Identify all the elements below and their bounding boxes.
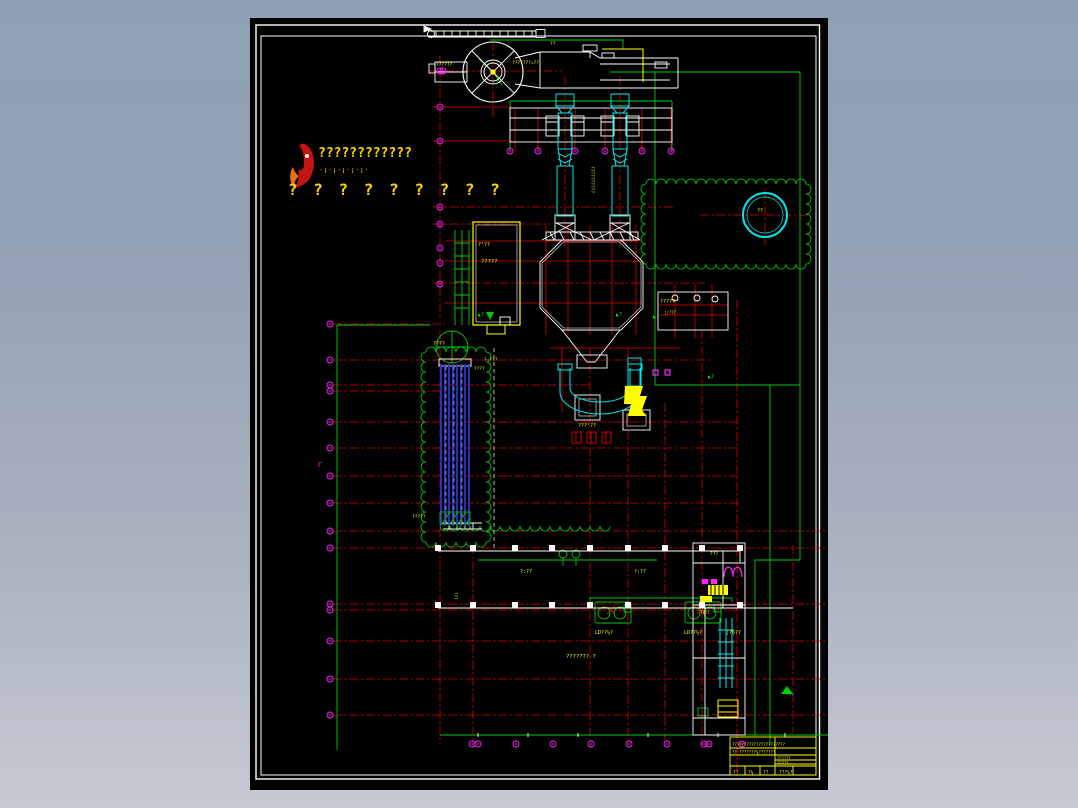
cad-canvas: ?????????????????????? ??·???????¼??????… — [250, 18, 828, 790]
drawing-label: ?????????? — [589, 166, 595, 193]
drawing-label: ·?? — [786, 692, 794, 698]
yellow-fills — [491, 70, 729, 603]
title-cell-2: ?¼ — [748, 770, 754, 776]
drawing-label: ??? — [453, 592, 458, 600]
drawing-label: ¦?§?? — [726, 630, 741, 636]
stack-revision-cloud — [421, 347, 491, 547]
column-square — [549, 602, 555, 608]
drawing-label: ??? — [710, 551, 718, 557]
drawing-label: ?:?? — [634, 569, 646, 575]
column-square — [587, 602, 593, 608]
drawing-label: ????? — [412, 514, 426, 520]
logo-text-row2: ? ? ? ? ? ? ? ? ? — [288, 180, 503, 199]
drawing-label: ◣? — [478, 312, 484, 318]
column-square — [435, 602, 441, 608]
drawing-label: ????? — [481, 259, 498, 265]
column-square — [625, 602, 631, 608]
drawing-label: ???²?? — [578, 423, 596, 429]
column-square — [512, 545, 518, 551]
drawing-label: ???? — [700, 610, 710, 615]
drawing-label: ???????=?? — [512, 60, 539, 66]
column-square — [662, 545, 668, 551]
column-square — [435, 545, 441, 551]
drawing-label: ???? — [474, 366, 485, 372]
drawing-label: ???? — [433, 341, 445, 347]
magenta-fills — [702, 579, 717, 584]
company-logo-block: ???????????? ·¡·¡·¡·¡·¡· ? ? ? ? ? ? ? ?… — [287, 143, 437, 223]
column-square — [470, 545, 476, 551]
drawing-label: ?? — [550, 41, 556, 47]
column-square — [587, 545, 593, 551]
drawing-label: Γ — [318, 461, 322, 469]
drawing-label: ◣? — [616, 312, 622, 318]
drawing-label: LD??½? — [595, 629, 613, 636]
drawing-label: ?????? — [436, 62, 453, 68]
title-right-row-2: ?????? — [777, 761, 789, 765]
drawing-label: ◣? — [653, 314, 659, 320]
column-square — [512, 602, 518, 608]
logo-text-row1: ???????????? — [318, 146, 412, 161]
column-square — [662, 602, 668, 608]
column-square — [549, 545, 555, 551]
title-right-row-1: ??????? — [777, 756, 791, 760]
drawing-label: ???????·? — [566, 654, 596, 660]
title-cell-3: ?? — [763, 770, 769, 776]
drawing-label: LD??½? — [684, 629, 702, 636]
red-pump-hatch — [572, 432, 705, 614]
column-square — [625, 545, 631, 551]
drawing-label: ?? — [757, 208, 763, 214]
title-cell-1: ?? — [733, 770, 739, 776]
wavy-boundary-line — [440, 526, 610, 531]
drawing-label: ????? — [660, 299, 675, 305]
drawing-label: ◣? — [708, 374, 714, 380]
column-square — [737, 602, 743, 608]
drawing-label: ?¹?? — [478, 242, 490, 248]
column-square — [699, 602, 705, 608]
drawing-label: ?·??? — [484, 357, 498, 363]
column-square — [470, 602, 476, 608]
title-cell-4: ???¼? — [779, 770, 793, 776]
column-square — [699, 545, 705, 551]
column-markers — [435, 545, 743, 608]
drawing-label: ?:?? — [520, 569, 532, 575]
cad-drawing: ?????????????????????? ??·???????¼??????… — [250, 18, 828, 790]
drawing-label: ¦¦??? — [664, 310, 677, 315]
blue-pipe-stack — [441, 364, 469, 526]
column-square — [737, 545, 743, 551]
logo-text-dots: ·¡·¡·¡·¡·¡· — [320, 166, 369, 174]
